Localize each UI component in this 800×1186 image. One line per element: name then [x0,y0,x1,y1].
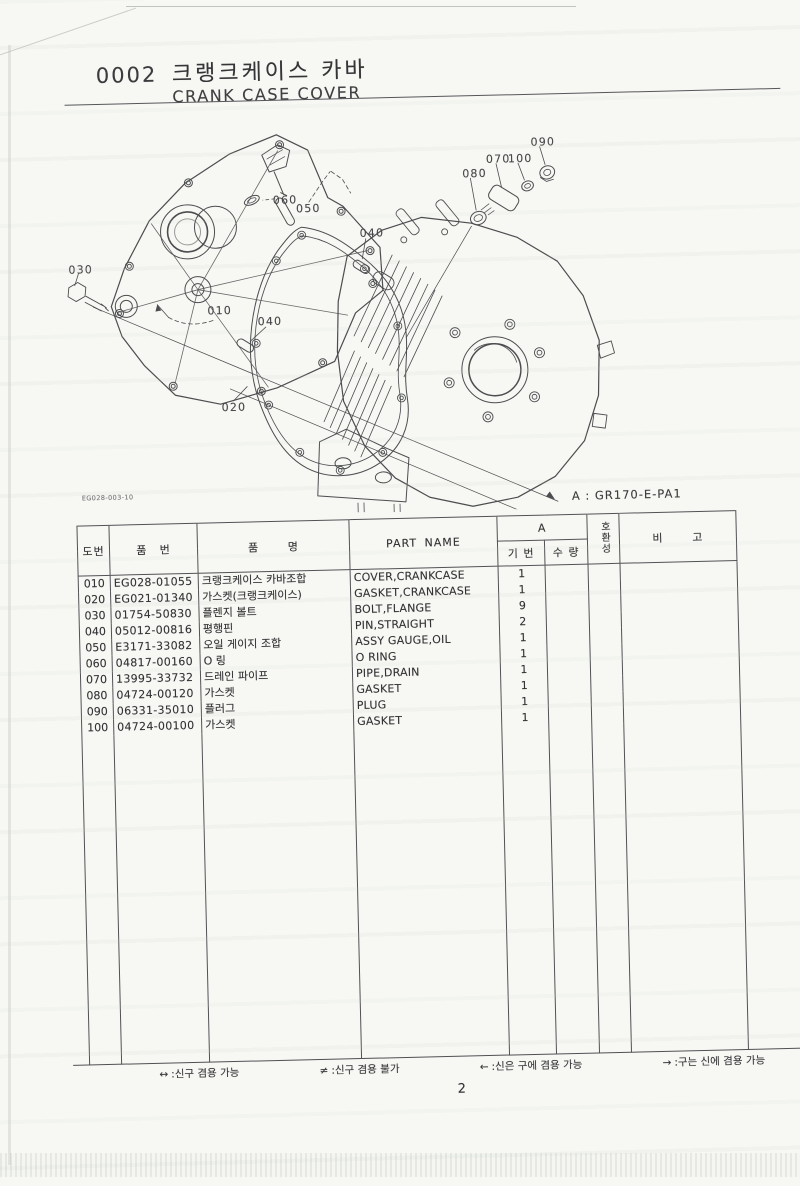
paper-edge-left [8,45,11,1165]
legend-item: ≠:신구 겸용 불가 [319,1061,399,1078]
header-part-name-en: PART NAME [349,516,498,569]
legend-item: →:구는 신에 겸용 가능 [662,1053,765,1070]
qty-cell [545,581,588,598]
callout-label-060: 060 [273,193,298,207]
ref-qty-cell: 1 [500,662,547,679]
flange-bolt-drawing [68,282,109,312]
legend-item: ↔:신구 겸용 가능 [159,1065,239,1082]
oil-filler-boss [115,295,138,318]
ref-qty-cell: 9 [499,598,546,615]
callout-label-080: 080 [462,167,487,181]
ref-qty-cell: 2 [499,614,546,631]
qty-cell [546,597,589,614]
header-doc-no: 도번 [77,525,110,576]
header-part-name-ko: 품 명 [197,520,350,574]
drain-plug-parts-drawing [402,164,560,338]
empty-filler-row [82,721,749,1065]
doc-no-cell: 010 [78,575,110,592]
engine-block-drawing [311,194,618,515]
legend-text: :신구 겸용 가능 [171,1067,239,1081]
compat-cell [590,660,622,677]
block-bolt-bosses [443,319,546,423]
callout-label-090: 090 [530,135,555,149]
oil-gauge-drawing [242,144,296,227]
header-compatibility-text: 호환성 [598,521,609,554]
qty-cell [547,629,590,646]
parts-table: 도번 품 번 품 명 PART NAME A 호환성 비 고 기 번 수 량 0… [76,510,749,1065]
qty-cell [545,564,588,582]
doc-no-cell: 080 [81,688,113,705]
header-variant-a: A [497,514,588,541]
doc-no-cell: 090 [81,704,113,721]
doc-no-cell: 060 [80,656,112,673]
qty-cell [546,613,589,630]
paper-edge-top [126,6,576,7]
compat-cell [589,596,621,613]
compat-cell [590,628,622,645]
document-code: 0002 [96,63,158,88]
gasket-bolt-holes [250,229,408,477]
legend-text: :신은 구에 겸용 가능 [491,1059,582,1073]
legend-symbol: ↔ [159,1069,168,1081]
callout-label-030: 030 [68,263,93,277]
callout-label-040-lower: 040 [258,315,283,329]
compat-cell [591,692,623,709]
parts-table-empty-space [82,721,749,1065]
header-part-no: 품 번 [109,523,198,575]
assembly-axis-lines [93,296,558,520]
compat-cell [591,708,623,725]
compat-cell [591,676,623,693]
doc-no-cell: 030 [79,608,111,625]
callout-leader-lines [72,146,551,404]
callout-label-010: 010 [207,304,232,318]
doc-no-cell: 020 [79,592,111,609]
compat-cell [588,580,620,597]
scanner-edge-band [0,1153,800,1177]
doc-no-cell: 100 [82,720,114,737]
crankcase-cover-drawing [107,132,385,406]
legend-symbol: → [662,1057,671,1069]
compat-cell [588,563,620,580]
block-side-lugs [590,341,616,429]
ref-qty-cell: 1 [501,678,548,695]
scan-content: 0002 크랭크케이스 카바 CRANK CASE COVER [0,0,800,1186]
ref-qty-cell: 1 [500,630,547,647]
qty-cell [548,709,591,726]
exploded-parts-diagram: 030 010 020 040 040 050 060 070 080 090 … [49,94,659,520]
gasket-drawing [248,225,410,478]
parts-table-body: 010 EG028-01055 크랭크케이스 카바조합 COVER,CRANKC… [78,561,741,737]
ref-qty-cell: 1 [501,710,548,727]
qty-cell [548,693,591,710]
model-variant-note: A : GR170-E-PA1 [572,486,682,503]
header-qty: 수 량 [544,539,588,565]
legend-text: :신구 겸용 불가 [331,1063,399,1077]
legend-symbol: ← [480,1061,489,1073]
doc-no-cell: 070 [80,672,112,689]
header-remarks: 비 고 [619,511,737,564]
diagram-svg [49,94,659,520]
callout-label-020: 020 [222,401,247,415]
doc-no-cell: 050 [80,640,112,657]
compat-cell [589,612,621,629]
legend-symbol: ≠ [319,1065,328,1077]
part-no-cell: EG028-01055 [110,573,198,592]
legend-item: ←:신은 구에 겸용 가능 [480,1057,583,1074]
legend-text: :구는 신에 겸용 가능 [674,1055,765,1069]
header-compatibility: 호환성 [587,513,620,564]
header-ref-no: 기 번 [497,540,545,566]
qty-cell [547,661,590,678]
callout-label-040-upper: 040 [359,226,384,240]
ref-qty-cell: 1 [498,582,545,599]
part-no-cell: 04724-00100 [114,718,202,736]
figure-reference-code: EG028-003-10 [82,493,134,502]
callout-label-100: 100 [508,152,533,166]
callout-label-050: 050 [296,202,321,216]
compat-cell [590,644,622,661]
qty-cell [547,645,590,662]
ref-qty-cell: 1 [500,646,547,663]
scanned-parts-catalog-page: { "header": { "doc_code": "0002", "title… [0,0,800,1177]
qty-cell [548,677,591,694]
ref-qty-cell: 1 [498,565,545,583]
doc-no-cell: 040 [79,624,111,641]
ref-qty-cell: 1 [501,694,548,711]
